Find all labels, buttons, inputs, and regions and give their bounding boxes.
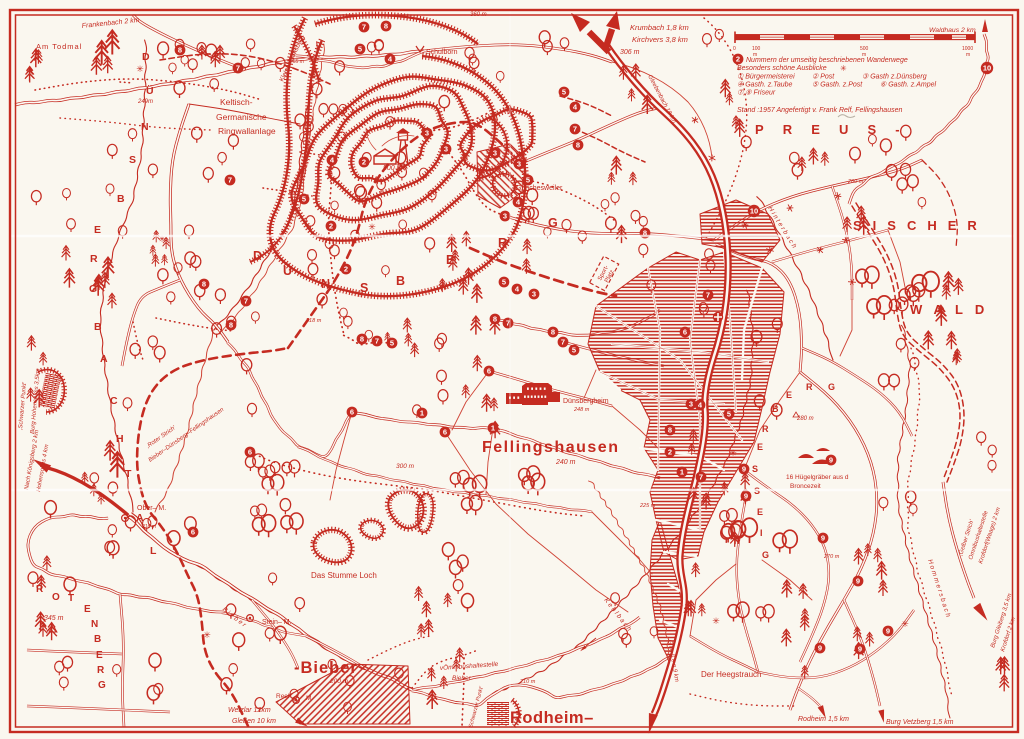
svg-text:Schulborn: Schulborn (426, 49, 458, 56)
svg-text:D: D (253, 249, 262, 263)
svg-text:Rodheim–: Rodheim– (510, 709, 594, 727)
svg-text:B: B (117, 193, 125, 205)
svg-text:10: 10 (750, 207, 758, 216)
svg-text:⑦,⑧ Friseur: ⑦,⑧ Friseur (737, 89, 776, 97)
svg-text:265 m: 265 m (289, 59, 304, 65)
svg-text:Waldhaus 2 km: Waldhaus 2 km (929, 27, 976, 34)
svg-text:Keltisch-: Keltisch- (220, 97, 253, 107)
svg-text:Stand :1957 Angefertigt v.: Stand :1957 Angefertigt v. Frank Relf, F… (737, 107, 902, 114)
svg-text:8: 8 (178, 46, 182, 55)
svg-text:3: 3 (532, 290, 536, 299)
svg-text:Besonders schöne Ausblicke: Besonders schöne Ausblicke (737, 65, 827, 72)
svg-text:306 m: 306 m (620, 49, 640, 56)
svg-text:7: 7 (236, 64, 240, 73)
svg-text:H: H (116, 433, 124, 445)
svg-text:G: G (828, 382, 838, 392)
svg-text:E: E (96, 650, 103, 661)
svg-text:Fellingshausen: Fellingshausen (482, 439, 619, 456)
svg-text:216 m: 216 m (141, 524, 156, 530)
svg-text:E: E (757, 507, 766, 517)
svg-text:✳: ✳ (368, 222, 376, 232)
svg-text:S: S (129, 154, 136, 166)
svg-text:③ Gasth z.Dünsberg: ③ Gasth z.Dünsberg (862, 73, 927, 81)
svg-text:5: 5 (526, 176, 530, 185)
svg-text:S: S (752, 464, 761, 474)
svg-text:7: 7 (706, 291, 710, 300)
svg-text:T: T (125, 468, 132, 480)
svg-text:7: 7 (375, 337, 379, 346)
svg-text:Ü: Ü (146, 84, 154, 97)
svg-text:5: 5 (502, 278, 506, 287)
svg-text:✳: ✳ (203, 630, 211, 640)
svg-text:m: m (966, 52, 970, 58)
svg-text:Dünsbergheim: Dünsbergheim (563, 398, 609, 405)
svg-text:E: E (446, 253, 454, 267)
svg-text:500 m: 500 m (383, 165, 403, 172)
svg-text:3: 3 (425, 129, 429, 138)
svg-text:R: R (762, 424, 771, 434)
svg-text:6: 6 (248, 448, 252, 457)
svg-text:I: I (760, 528, 765, 538)
svg-text:N: N (321, 277, 330, 291)
svg-text:9: 9 (744, 492, 748, 501)
svg-text:280 m: 280 m (847, 179, 864, 185)
svg-text:D: D (142, 51, 150, 63)
svg-text:R: R (498, 236, 507, 250)
svg-text:6: 6 (487, 367, 491, 376)
svg-text:9: 9 (856, 577, 860, 586)
svg-text:8: 8 (668, 426, 672, 435)
svg-text:5: 5 (572, 346, 576, 355)
svg-text:210 m: 210 m (519, 679, 536, 685)
svg-text:G: G (89, 283, 97, 295)
svg-text:R: R (90, 253, 98, 265)
svg-text:N: N (141, 121, 149, 133)
svg-text:Rodheim 1,5 km: Rodheim 1,5 km (798, 716, 849, 723)
svg-text:3: 3 (444, 145, 448, 154)
svg-text:3: 3 (517, 160, 521, 169)
svg-text:318 m: 318 m (306, 318, 322, 324)
svg-text:✳: ✳ (840, 64, 847, 73)
svg-text:9: 9 (821, 534, 825, 543)
svg-text:3: 3 (503, 212, 507, 221)
svg-text:A: A (136, 512, 144, 524)
svg-text:④ Gasth. z.Taube: ④ Gasth. z.Taube (737, 81, 793, 89)
svg-text:9: 9 (818, 644, 822, 653)
svg-text:10: 10 (983, 64, 991, 73)
svg-text:Germanische: Germanische (216, 112, 267, 122)
svg-text:Der Heegstrauch: Der Heegstrauch (701, 670, 761, 679)
svg-text:5: 5 (390, 339, 394, 348)
svg-text:B: B (94, 321, 102, 333)
svg-text:② Post: ② Post (812, 73, 835, 81)
svg-text:R: R (36, 584, 44, 595)
svg-text:O: O (52, 592, 60, 603)
svg-text:5: 5 (727, 410, 731, 419)
svg-text:2: 2 (329, 222, 333, 231)
svg-text:8: 8 (576, 141, 580, 150)
svg-text:G: G (98, 680, 106, 691)
svg-text:5: 5 (562, 88, 566, 97)
svg-text:8: 8 (360, 335, 364, 344)
svg-text:1: 1 (680, 468, 684, 477)
svg-text:2: 2 (668, 448, 672, 457)
svg-text:B: B (772, 404, 781, 414)
svg-text:7: 7 (561, 338, 565, 347)
svg-text:Grinchesweiler: Grinchesweiler (516, 185, 563, 192)
svg-text:7: 7 (699, 473, 703, 482)
svg-text:N: N (91, 619, 98, 630)
svg-text:1: 1 (420, 409, 424, 418)
svg-text:Gleßen 10 km: Gleßen 10 km (232, 718, 276, 725)
svg-text:P R E U S -: P R E U S - (755, 122, 909, 137)
svg-text:E: E (786, 390, 795, 400)
svg-text:8: 8 (551, 328, 555, 337)
svg-text:B: B (396, 274, 405, 288)
svg-text:8: 8 (384, 22, 388, 31)
svg-text:✳: ✳ (729, 448, 737, 458)
svg-text:⑤ Gasth. z.Post: ⑤ Gasth. z.Post (812, 81, 863, 89)
svg-text:300 m: 300 m (396, 463, 415, 470)
svg-text:Nummern der umseitig beschrieb: Nummern der umseitig beschriebenen Wande… (746, 57, 908, 64)
svg-text:2: 2 (362, 158, 366, 167)
svg-text:200 m: 200 m (329, 678, 349, 685)
svg-text:C: C (110, 395, 118, 407)
svg-text:225 m: 225 m (639, 503, 656, 509)
svg-text:7: 7 (573, 125, 577, 134)
svg-text:249m: 249m (137, 99, 153, 105)
svg-text:6: 6 (683, 328, 687, 337)
svg-text:1: 1 (491, 424, 495, 433)
svg-text:G: G (548, 216, 558, 230)
svg-text:⑥ Gasth. z.Ampel: ⑥ Gasth. z.Ampel (880, 81, 937, 89)
svg-text:R: R (806, 382, 815, 392)
svg-text:Das Stumme Loch: Das Stumme Loch (311, 571, 377, 580)
svg-text:7: 7 (228, 176, 232, 185)
svg-text:M.: M. (306, 695, 313, 702)
svg-text:Burg Vetzberg 1,5 km: Burg Vetzberg 1,5 km (886, 719, 954, 726)
svg-text:T: T (68, 593, 74, 604)
svg-text:240 m: 240 m (555, 459, 576, 466)
svg-text:S: S (360, 281, 368, 295)
svg-text:Bieber: Bieber (452, 675, 472, 682)
svg-text:Ringwallanlage: Ringwallanlage (218, 126, 276, 136)
svg-text:E: E (94, 224, 101, 236)
svg-text:Ü: Ü (283, 263, 292, 278)
svg-text:SISCHER: SISCHER (853, 218, 988, 233)
svg-text:L: L (150, 545, 157, 557)
svg-text:6: 6 (350, 408, 354, 417)
svg-text:8: 8 (493, 315, 497, 324)
svg-text:R: R (97, 665, 105, 676)
svg-text:9: 9 (742, 465, 746, 474)
svg-text:2: 2 (344, 265, 348, 274)
svg-text:8: 8 (229, 321, 233, 330)
svg-text:7: 7 (244, 297, 248, 306)
svg-text:-Bieber: -Bieber (294, 659, 358, 677)
svg-text:270 m: 270 m (823, 554, 840, 560)
svg-text:A: A (100, 353, 108, 365)
svg-text:G: G (762, 550, 772, 560)
svg-text:Am Todmal: Am Todmal (36, 42, 82, 51)
svg-text:Stein– M.: Stein– M. (262, 619, 292, 626)
svg-text:9: 9 (829, 456, 833, 465)
svg-text:6: 6 (191, 528, 195, 537)
svg-text:16 Hügelgräber aus d: 16 Hügelgräber aus d (786, 474, 849, 481)
svg-text:3: 3 (493, 149, 497, 158)
svg-text:2: 2 (736, 55, 740, 64)
svg-text:9: 9 (858, 645, 862, 654)
svg-text:Kirchvers 3,8 km: Kirchvers 3,8 km (632, 35, 688, 44)
svg-text:0: 0 (733, 46, 736, 52)
svg-text:6: 6 (443, 428, 447, 437)
svg-text:✳: ✳ (136, 64, 144, 74)
svg-text:345 m: 345 m (44, 615, 64, 622)
svg-text:248 m: 248 m (573, 407, 590, 413)
svg-text:✳: ✳ (901, 619, 909, 629)
svg-text:B: B (94, 634, 101, 645)
svg-text:✳: ✳ (712, 616, 720, 626)
svg-text:① Bürgermeisterei: ① Bürgermeisterei (737, 73, 795, 81)
svg-text:E: E (757, 442, 766, 452)
svg-text:Wetzlar 12km: Wetzlar 12km (228, 707, 271, 714)
svg-text:5: 5 (358, 45, 362, 54)
svg-text:E: E (84, 604, 91, 615)
svg-text:3: 3 (689, 400, 693, 409)
svg-text:WALD: WALD (910, 302, 996, 317)
svg-text:Reeh.: Reeh. (276, 693, 294, 700)
svg-text:7: 7 (362, 23, 366, 32)
svg-text:8: 8 (202, 280, 206, 289)
svg-text:Krumbach 1,8 km: Krumbach 1,8 km (630, 23, 689, 32)
svg-text:9: 9 (886, 627, 890, 636)
svg-text:5: 5 (302, 195, 306, 204)
svg-text:Ober– M.: Ober– M. (137, 505, 166, 512)
